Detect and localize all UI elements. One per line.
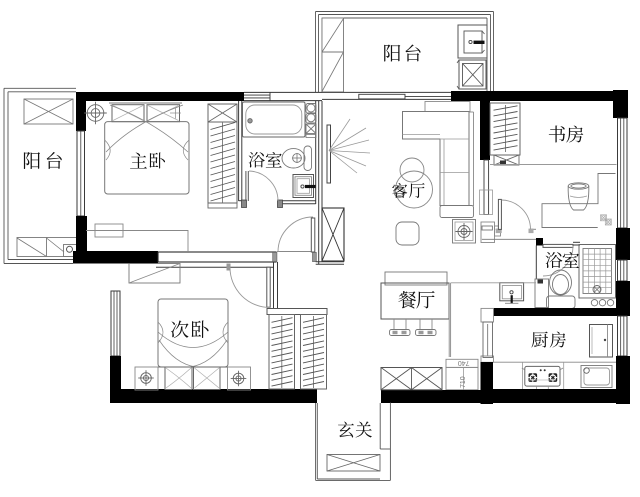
svg-text:710: 710 <box>460 376 467 388</box>
svg-text:740: 740 <box>458 359 470 366</box>
